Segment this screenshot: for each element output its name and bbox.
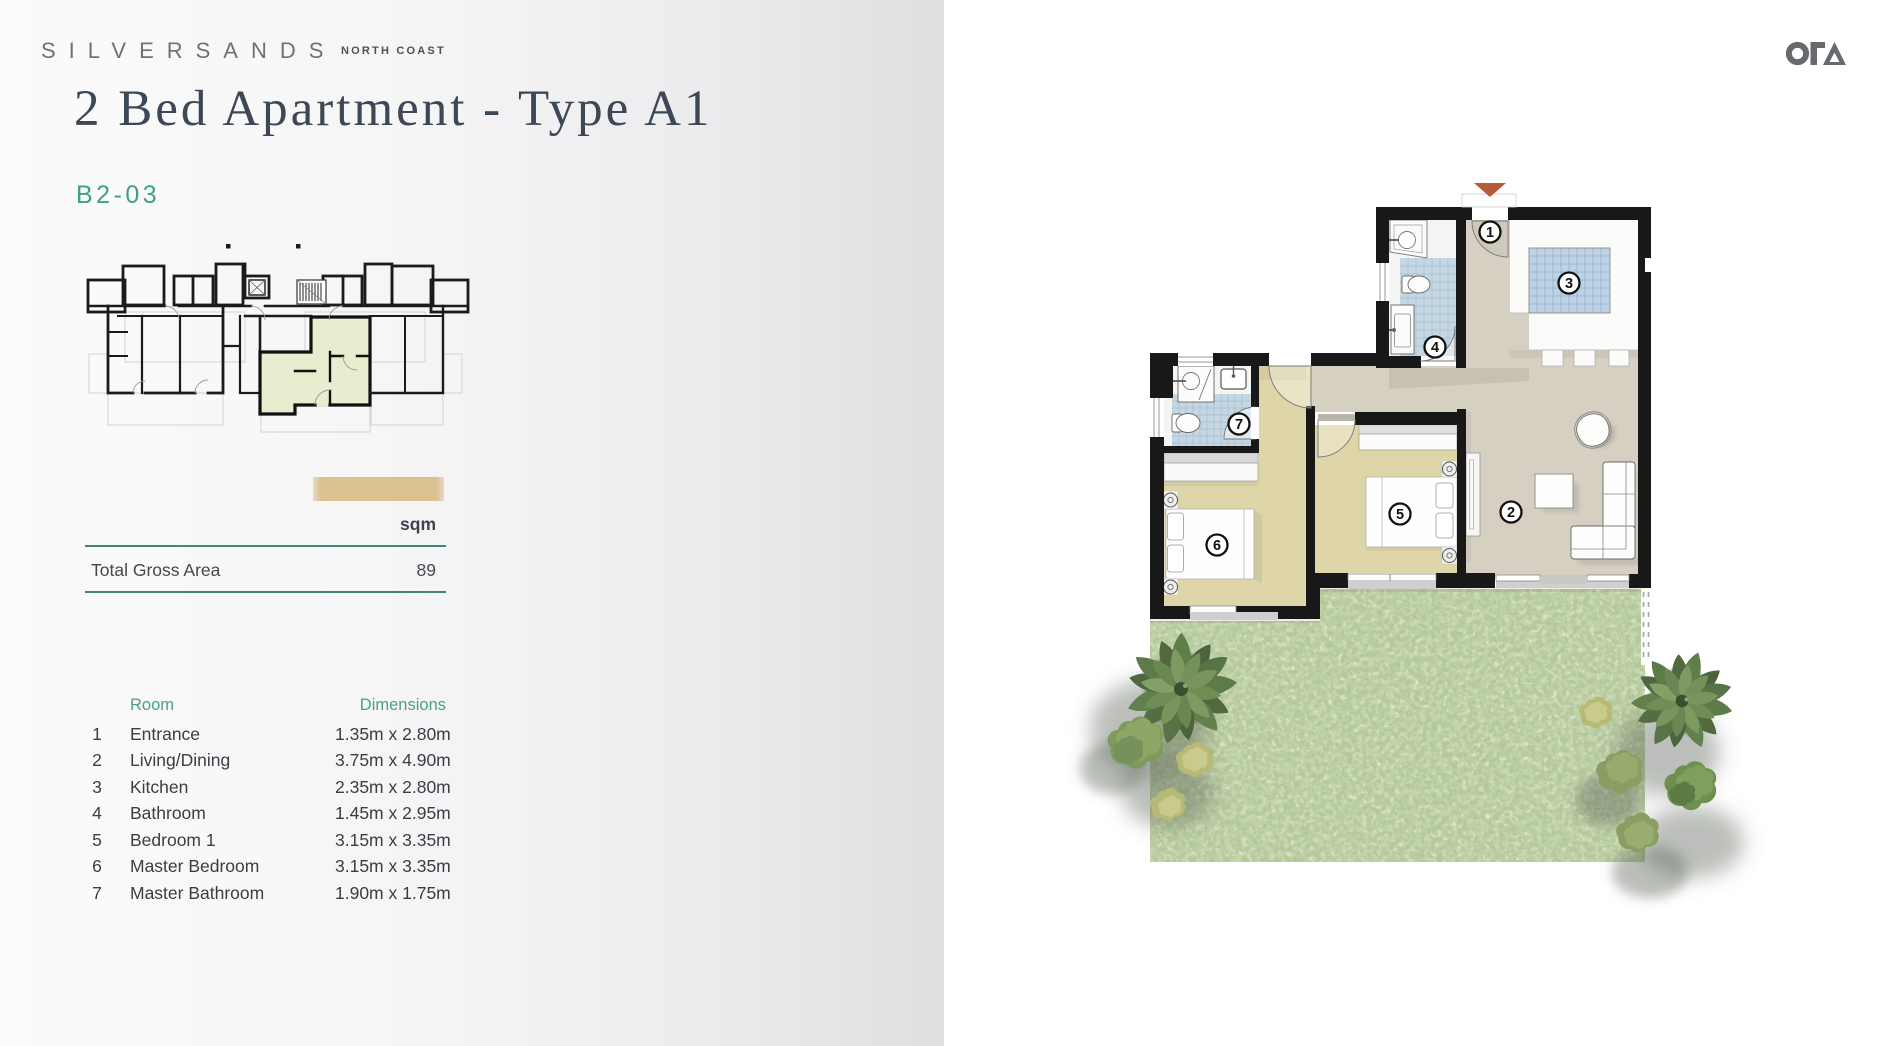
svg-text:4: 4	[1431, 340, 1439, 356]
svg-text:6: 6	[1213, 538, 1221, 554]
svg-text:7: 7	[1235, 417, 1243, 433]
svg-text:1: 1	[1486, 225, 1494, 241]
svg-text:2: 2	[1507, 505, 1515, 521]
svg-text:3: 3	[1565, 276, 1573, 292]
svg-text:5: 5	[1396, 507, 1404, 523]
